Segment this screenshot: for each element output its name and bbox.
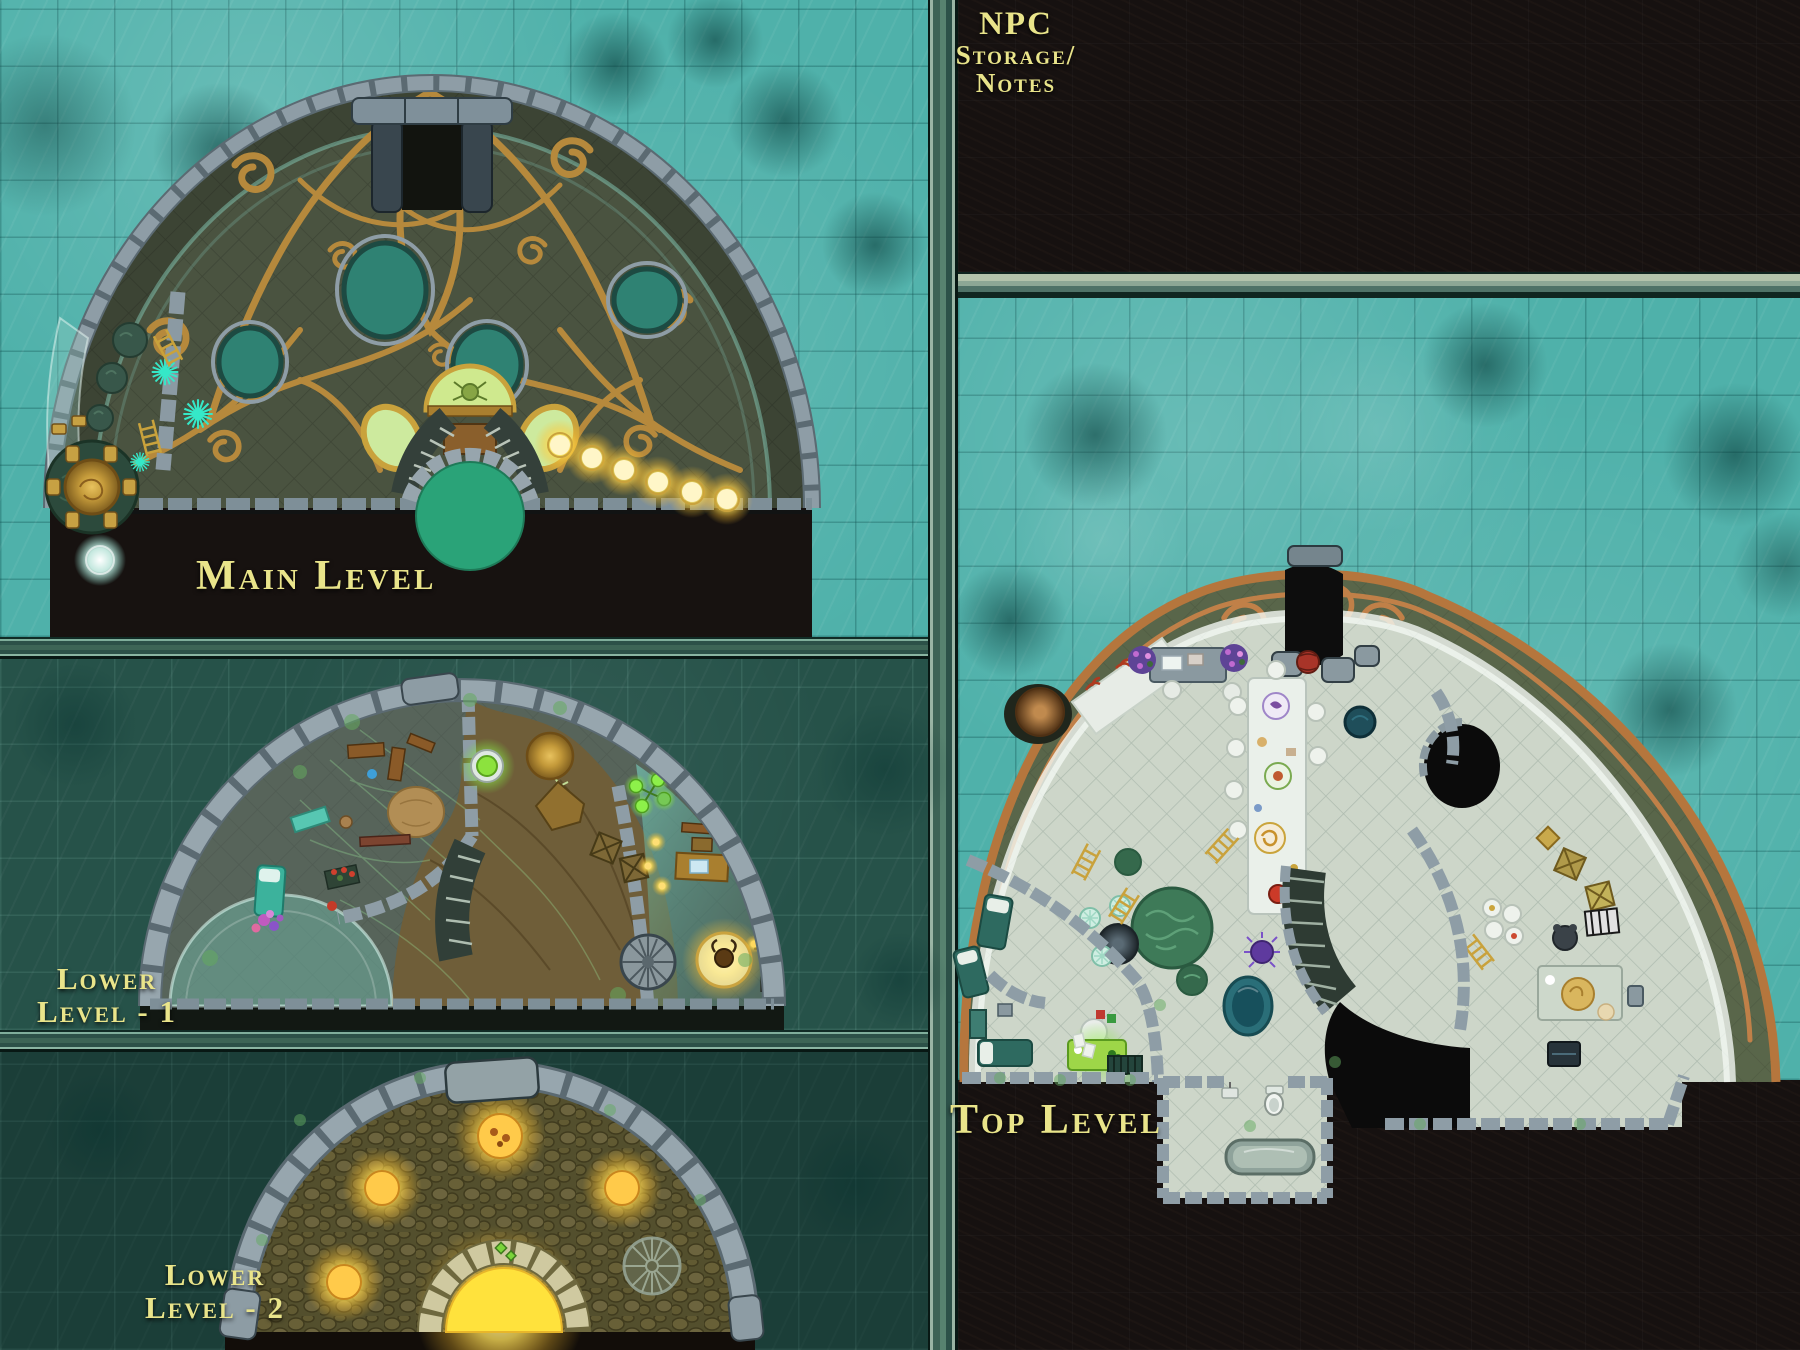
divider-lower1-lower2 — [0, 1030, 928, 1052]
water-shadow — [10, 660, 140, 790]
npc-label-line3: Notes — [952, 69, 1080, 97]
water-ripple — [300, 150, 560, 350]
water-shadow — [560, 10, 670, 120]
battle-map: Main Level Lower Level - 1 Lower Level -… — [0, 0, 1800, 1350]
water-shadow — [1150, 600, 1280, 730]
divider-npc-top — [958, 272, 1800, 298]
water-shadow — [725, 60, 845, 180]
lower-level-1-label-line2: Level - 1 — [27, 995, 187, 1028]
water-shadow — [1600, 640, 1740, 780]
lower-level-2-label: Lower Level - 2 — [135, 1258, 295, 1325]
water-shadow — [40, 1070, 160, 1190]
npc-storage-notes-label: NPC Storage/ Notes — [952, 8, 1080, 98]
lower-level-1-label-line1: Lower — [27, 962, 187, 995]
water-shadow — [850, 930, 950, 1030]
water-shadow — [1660, 380, 1800, 530]
npc-label-line2: Storage/ — [952, 41, 1080, 69]
npc-label-line1: NPC — [952, 8, 1080, 41]
water-shadow — [815, 700, 955, 840]
lower-level-1-label: Lower Level - 1 — [27, 962, 187, 1029]
lower-level-2-label-line1: Lower — [135, 1258, 295, 1291]
water-shadow — [150, 80, 290, 220]
divider-vertical — [928, 0, 958, 1350]
water-shadow — [820, 190, 930, 300]
panel-npc-storage — [958, 0, 1800, 272]
divider-main-lower1 — [0, 637, 928, 659]
main-level-label: Main Level — [196, 552, 436, 600]
water-ripple — [1250, 330, 1510, 530]
water-ripple — [1000, 460, 1200, 620]
top-level-label: Top Level — [950, 1096, 1163, 1144]
water-shadow — [790, 1120, 920, 1250]
lower-level-2-label-line2: Level - 2 — [135, 1291, 295, 1324]
